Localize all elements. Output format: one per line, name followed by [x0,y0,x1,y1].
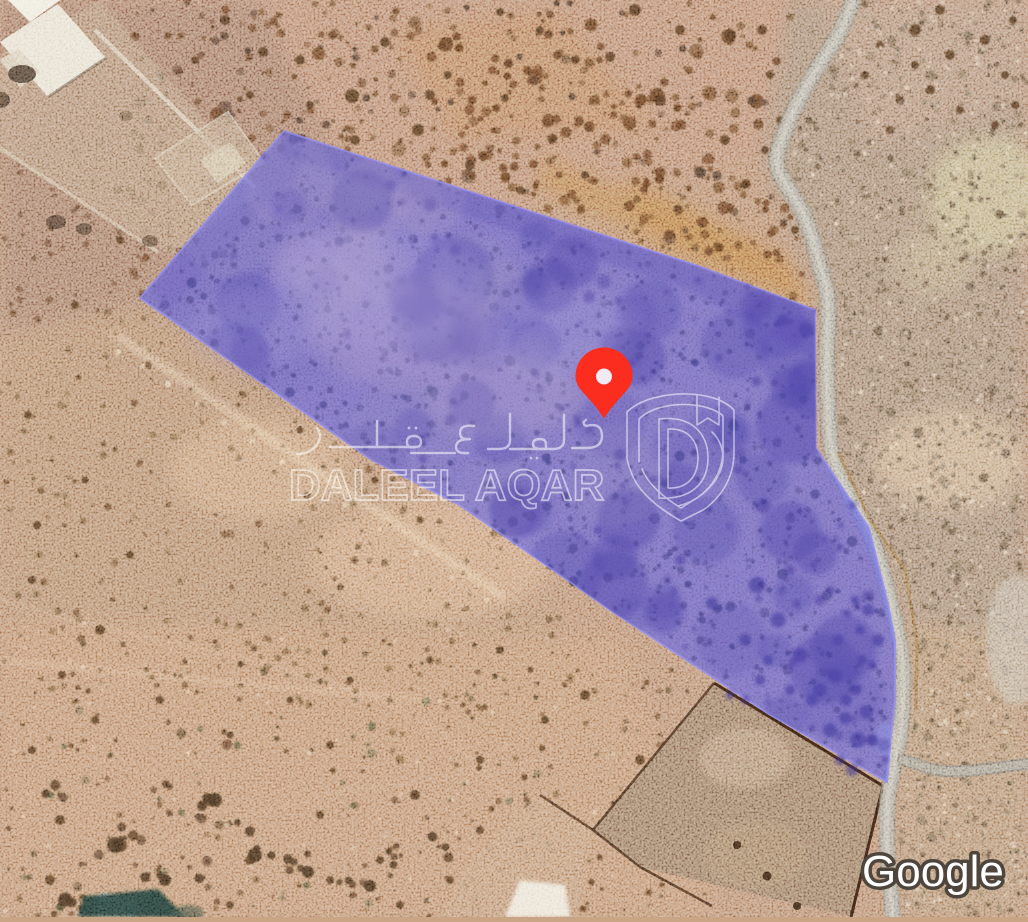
svg-text:DALEEL AQAR: DALEEL AQAR [289,461,604,510]
svg-text:Google: Google [862,847,1004,896]
